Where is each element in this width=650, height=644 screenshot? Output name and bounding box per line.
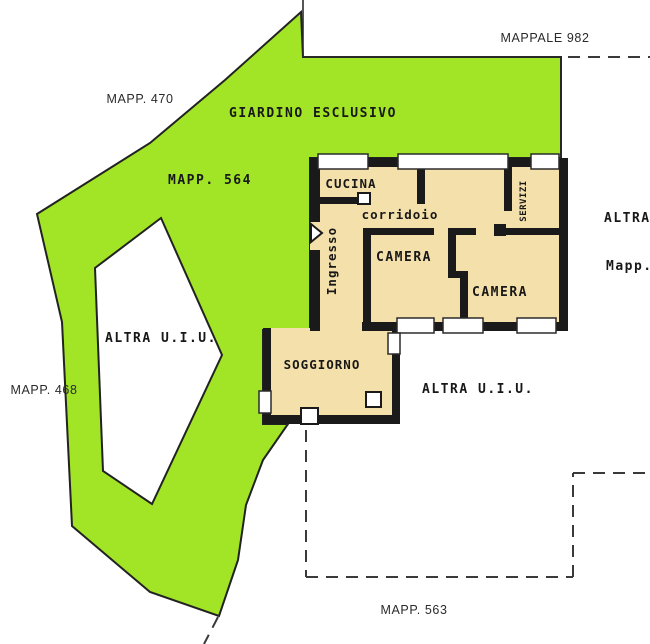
window-bottom-1: [397, 318, 434, 333]
label-mapp-470: MAPP. 470: [106, 92, 173, 106]
room-label-camera-1: CAMERA: [376, 250, 432, 265]
window-bottom-3: [517, 318, 556, 333]
window-annex-left: [259, 391, 271, 413]
wall-cucina-bottom: [320, 197, 363, 204]
cucina-door-post: [358, 193, 370, 204]
soggiorno-pillar-icon: [366, 392, 381, 407]
wall-left-lower: [310, 250, 320, 331]
room-label-cucina: CUCINA: [325, 176, 376, 191]
label-mapp-563: MAPP. 563: [380, 603, 447, 617]
wall-servizi-door-jamb: [494, 224, 506, 236]
wall-cucina-right: [417, 167, 425, 204]
dashed-line-bottom-diagonal: [204, 617, 218, 644]
annex-door-step: [301, 408, 318, 424]
label-altra-uiu-west: ALTRA U.I.U.: [105, 331, 217, 346]
wall-camera1-top: [371, 228, 434, 235]
label-altra-uiu-east: ALTRA U.I.U.: [422, 382, 534, 397]
label-mappale-982: MAPPALE 982: [500, 31, 589, 45]
room-label-soggiorno: SOGGIORNO: [284, 357, 361, 372]
label-altra-edge: ALTRA: [604, 211, 650, 226]
wall-annex-bottom: [263, 415, 400, 424]
cadastral-plan: MAPPALE 982 MAPP. 470 MAPP. 468 MAPP. 56…: [0, 0, 650, 644]
window-top-2: [398, 154, 508, 169]
wall-camera2-top-stub: [448, 228, 476, 235]
wall-right: [559, 158, 568, 331]
window-annex-right: [388, 333, 400, 354]
window-bottom-2: [443, 318, 483, 333]
wall-servizi-left: [504, 167, 512, 211]
room-label-servizi: SERVIZI: [519, 180, 529, 221]
label-mapp-edge: Mapp.: [606, 259, 650, 274]
room-label-ingresso: Ingresso: [324, 227, 339, 295]
label-mapp-564: MAPP. 564: [168, 173, 252, 188]
wall-central-vertical-upper: [448, 228, 456, 278]
room-label-camera-2: CAMERA: [472, 285, 528, 300]
window-top-1: [318, 154, 368, 169]
window-top-3: [531, 154, 559, 169]
label-mapp-468: MAPP. 468: [10, 383, 77, 397]
label-giardino-esclusivo: GIARDINO ESCLUSIVO: [229, 106, 397, 121]
plan-canvas: MAPPALE 982 MAPP. 470 MAPP. 468 MAPP. 56…: [0, 0, 650, 644]
room-label-corridoio: corridoio: [362, 207, 439, 222]
wall-ingresso-divider: [363, 228, 371, 327]
soggiorno-annex-floor: [263, 328, 400, 424]
